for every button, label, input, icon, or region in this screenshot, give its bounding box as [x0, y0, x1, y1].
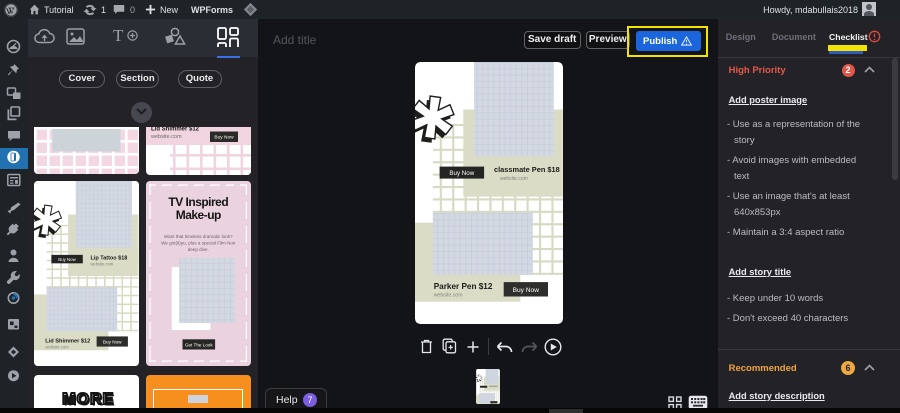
svg-text:deep dive.: deep dive.	[188, 247, 209, 252]
svg-text:website.com: website.com	[46, 344, 70, 349]
svg-text:Make-up: Make-up	[176, 208, 221, 222]
svg-text:Want that timeless dramatic lo: Want that timeless dramatic look?	[164, 234, 233, 239]
svg-text:website.com: website.com	[150, 134, 182, 140]
svg-text:We got(it)yu, plus a special F: We got(it)yu, plus a special Film Noir	[161, 240, 236, 245]
svg-text:TV Inspired: TV Inspired	[169, 195, 229, 209]
svg-text:Lid Shimmer $12: Lid Shimmer $12	[46, 338, 91, 344]
svg-text:Lip Tattoo $18: Lip Tattoo $18	[91, 255, 128, 261]
svg-text:website.com: website.com	[91, 261, 114, 266]
svg-text:Buy Now: Buy Now	[214, 135, 234, 141]
svg-text:Get The Look: Get The Look	[185, 342, 213, 347]
svg-text:Lid Shimmer $12: Lid Shimmer $12	[151, 127, 200, 133]
